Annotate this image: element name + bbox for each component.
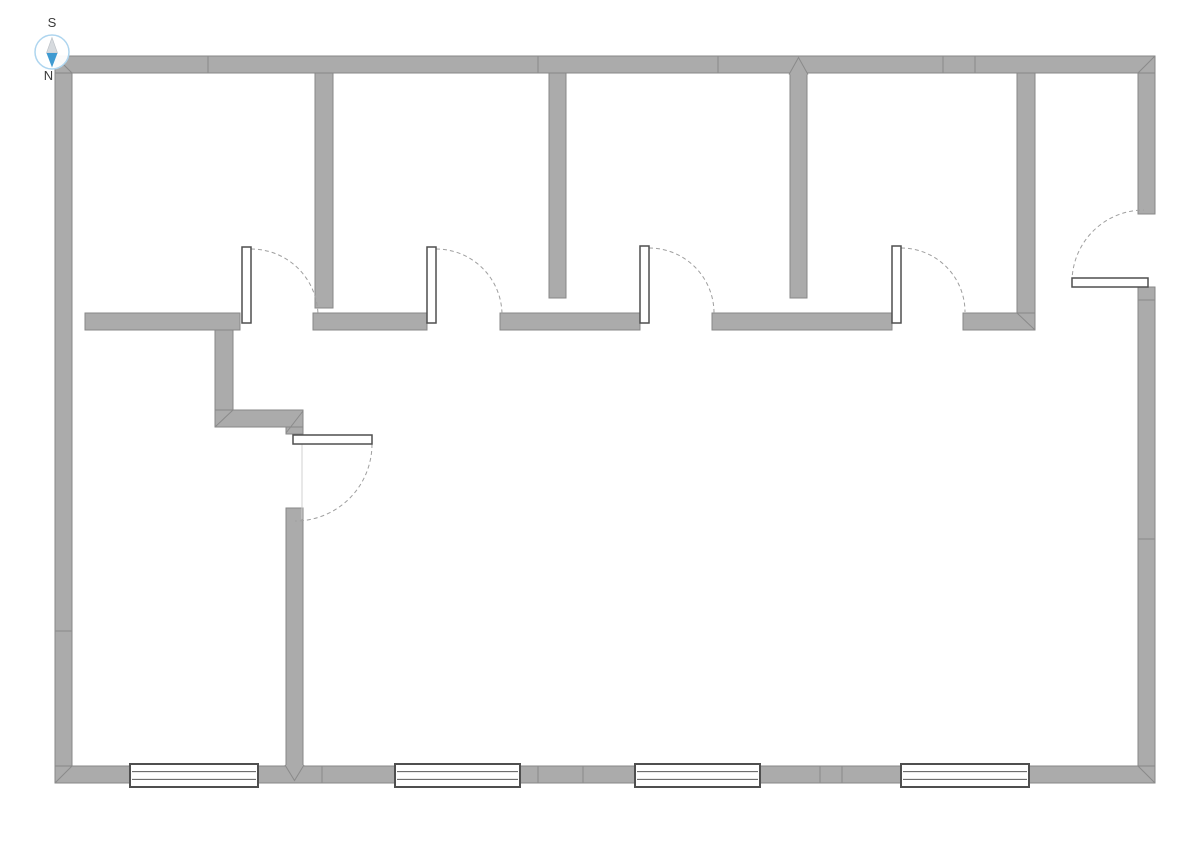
room-door-3[interactable] bbox=[640, 246, 714, 323]
door-leaf bbox=[242, 247, 251, 323]
interior-corridor-wall-2[interactable] bbox=[313, 313, 427, 330]
compass-label-north: N bbox=[44, 68, 53, 83]
floor-plan-canvas: SN bbox=[0, 0, 1191, 842]
window-frame bbox=[395, 764, 520, 787]
window-frame bbox=[635, 764, 760, 787]
step-wall-horizontal[interactable] bbox=[215, 410, 303, 427]
exterior-wall-right-lower[interactable] bbox=[1138, 287, 1155, 783]
room-divider-wall-3[interactable] bbox=[790, 73, 807, 298]
compass-label-south: S bbox=[48, 15, 57, 30]
room-door-2[interactable] bbox=[427, 247, 502, 323]
window-3[interactable] bbox=[635, 764, 760, 787]
window-1[interactable] bbox=[130, 764, 258, 787]
door-leaf bbox=[892, 246, 901, 323]
room-door-1[interactable] bbox=[242, 247, 318, 323]
interior-corridor-wall-1[interactable] bbox=[85, 313, 240, 330]
room-divider-wall-4[interactable] bbox=[1017, 73, 1035, 313]
exterior-wall-right-upper[interactable] bbox=[1138, 56, 1155, 214]
room-door-4[interactable] bbox=[892, 246, 965, 323]
lower-vertical-wall[interactable] bbox=[286, 508, 303, 766]
room-divider-wall-1[interactable] bbox=[315, 73, 333, 308]
door-swing-arc bbox=[901, 248, 965, 312]
door-swing-arc bbox=[649, 248, 714, 313]
door-leaf bbox=[640, 246, 649, 323]
room-door-left[interactable] bbox=[293, 435, 372, 521]
window-4[interactable] bbox=[901, 764, 1029, 787]
floor-plan-svg: SN bbox=[0, 0, 1191, 842]
entry-door-right[interactable] bbox=[1072, 210, 1148, 287]
door-leaf bbox=[1072, 278, 1148, 287]
interior-corridor-wall-3[interactable] bbox=[500, 313, 640, 330]
door-swing-arc bbox=[436, 249, 502, 315]
door-swing-arc bbox=[1072, 210, 1144, 282]
exterior-wall-left[interactable] bbox=[55, 56, 72, 783]
room-divider-wall-2[interactable] bbox=[549, 73, 566, 298]
door-leaf bbox=[293, 435, 372, 444]
window-frame bbox=[901, 764, 1029, 787]
window-2[interactable] bbox=[395, 764, 520, 787]
interior-corridor-wall-5[interactable] bbox=[963, 313, 1035, 330]
exterior-wall-top[interactable] bbox=[55, 56, 1155, 73]
window-frame bbox=[130, 764, 258, 787]
interior-corridor-wall-4[interactable] bbox=[712, 313, 892, 330]
door-leaf bbox=[427, 247, 436, 323]
door-swing-arc bbox=[251, 249, 318, 316]
door-swing-arc bbox=[295, 444, 372, 521]
